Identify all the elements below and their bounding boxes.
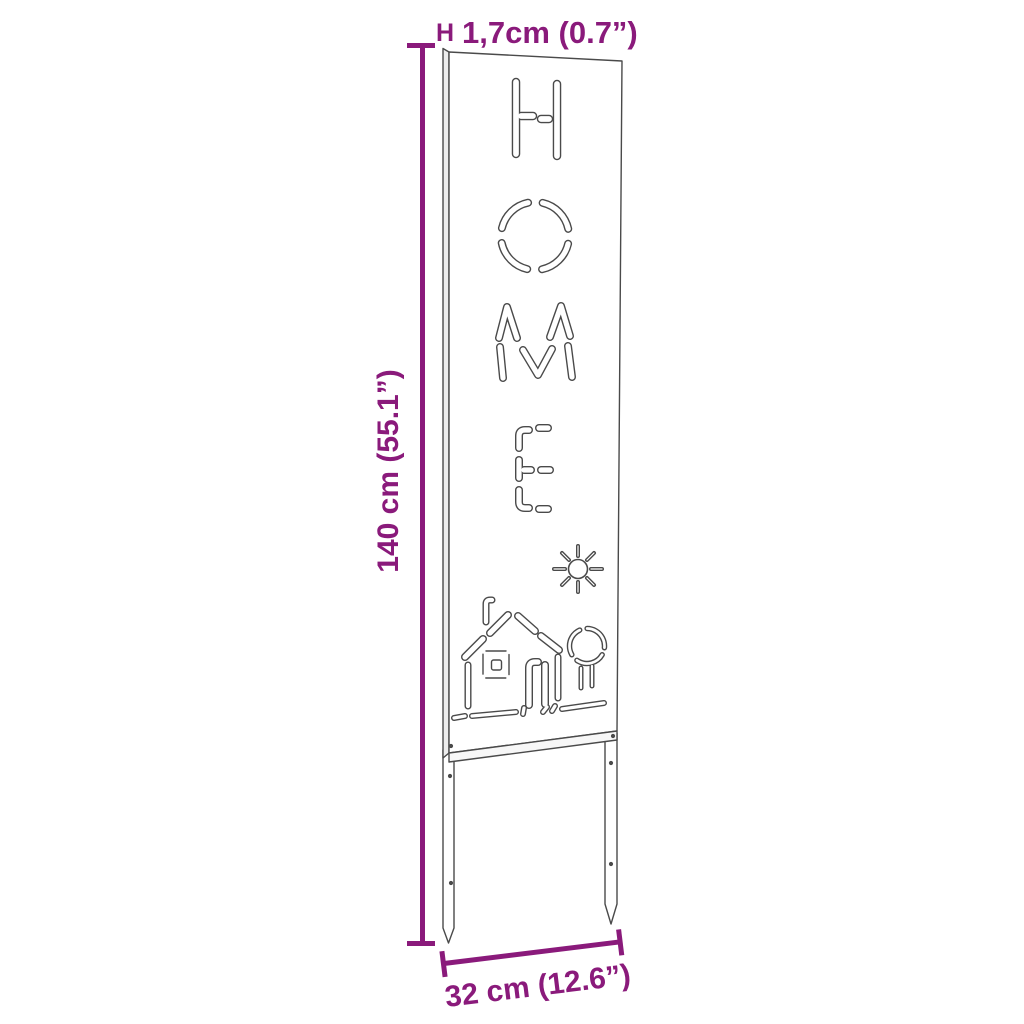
sign-line-art: HOME xyxy=(0,0,1024,1024)
thickness-marker: H xyxy=(436,19,453,48)
ground-stakes xyxy=(443,733,617,943)
height-dimension-tick-bottom xyxy=(407,941,435,946)
height-dimension-label: 140 cm (55.1”) xyxy=(372,351,404,591)
thickness-dimension-label: 1,7cm (0.7”) xyxy=(462,15,638,51)
product-diagram: HOME xyxy=(0,0,1024,1024)
panel-side-edge xyxy=(443,49,449,759)
height-dimension-line xyxy=(420,45,425,945)
stake-left xyxy=(443,750,454,943)
